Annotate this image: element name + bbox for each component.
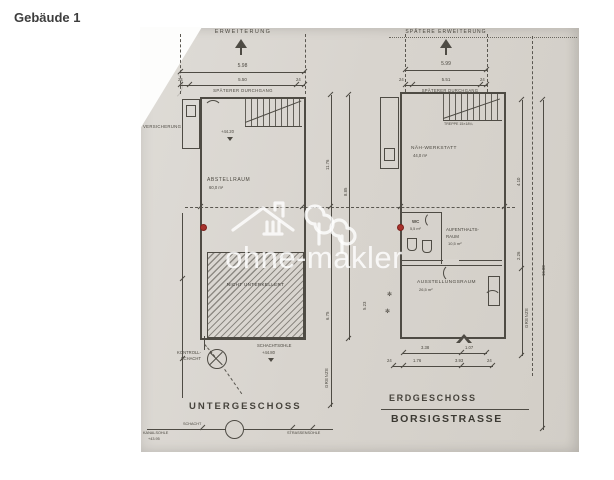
dim-height-inner: 8.85	[344, 188, 349, 196]
passage-label: SPÄTERER DURCHGANG	[191, 89, 295, 94]
dim-bottom-c: 1.76	[413, 359, 421, 363]
door-swing-arc	[425, 212, 441, 228]
dim-right-upper: 4.10	[517, 178, 522, 186]
room-workshop-label: NÄH-WERKSTATT	[411, 146, 457, 151]
room-wc-area: 5,5 m²	[410, 227, 421, 231]
floor-plan-scan: ERWEITERUNG 5.98 24 5.50 24 SPÄTERER DUR…	[141, 28, 579, 452]
no-basement-label: NICHT UNTERKELLERT	[208, 283, 303, 288]
dim-tick	[540, 426, 546, 432]
closet	[488, 276, 500, 306]
extension-label: SPÄTERE ERWEITERUNG	[393, 30, 499, 35]
dim-total-label: 5.98	[180, 64, 305, 69]
dim-right-mid: 2.26	[517, 252, 522, 260]
schacht-label: SCHACHT	[183, 422, 201, 426]
title-underline	[381, 409, 529, 410]
room-exhibition-label: AUSSTELLUNGSRAUM	[417, 280, 476, 285]
marker-red-dot	[200, 224, 207, 231]
room-storage-area: 60,0 m²	[209, 186, 223, 190]
level-triangle-icon	[227, 137, 233, 141]
dim-bottom-d: 3.93	[455, 359, 463, 363]
level-triangle-icon	[268, 358, 274, 362]
dimension-line	[393, 366, 493, 367]
room-exhibition-area: 26,5 m²	[419, 288, 433, 292]
strassensohle-label: STRASSENSOHLE	[287, 431, 320, 435]
dim-bottom-f: 24	[487, 359, 492, 363]
dim-tick	[328, 403, 334, 409]
dim-tick	[519, 353, 525, 359]
dimension-line	[405, 70, 487, 71]
vertical-dim-line	[522, 100, 523, 356]
room-lounge-line2: RAUM	[446, 234, 459, 239]
dim-tick	[484, 350, 490, 356]
room-workshop-area: 44,0 m²	[413, 154, 427, 158]
side-dim-line	[182, 213, 183, 398]
groundfloor-title: ERDGESCHOSS	[389, 394, 477, 403]
dim-bottom-e: 24	[387, 359, 392, 363]
symbol-asterisk: ✻	[387, 292, 392, 298]
room-lounge-line1: AUFENTHALTS-	[446, 227, 479, 232]
dim-total-label: 5.99	[405, 62, 487, 67]
level-mark: +44.20	[221, 130, 234, 134]
dimension-line	[180, 72, 305, 73]
room-lounge-label: AUFENTHALTS- RAUM	[446, 226, 479, 240]
kanalsohle-level: +43.95	[148, 437, 160, 441]
dim-wall-left: 24	[399, 78, 404, 82]
dimension-line	[403, 353, 487, 354]
control-shaft-line1: KONTROLL-	[177, 350, 201, 355]
symbol-asterisk: ✻	[385, 309, 390, 315]
street-name: BORSIGSTRASSE	[391, 414, 503, 425]
dim-bottom-b: 1.07	[465, 346, 473, 350]
dim-height-upper: 11.76	[326, 160, 331, 170]
exterior-structure-box	[384, 148, 395, 161]
dashed-connector	[224, 369, 242, 394]
extension-label: ERWEITERUNG	[171, 30, 315, 36]
dim-wall-right: 24	[296, 78, 301, 82]
door-swing-arc	[204, 100, 222, 118]
dim-bottom-a: 3.38	[421, 346, 429, 350]
stairs-label: TREPPE 15×18¼	[444, 123, 472, 127]
dim-inner-label: 5.50	[180, 78, 305, 83]
exterior-structure-box	[186, 105, 196, 117]
marker-red-dot	[397, 224, 404, 231]
grenze-label-left: GRENZE	[325, 368, 329, 388]
extension-boundary-right	[305, 34, 306, 94]
wc-wall	[441, 212, 442, 264]
insurance-label: VERSICHERUNG	[143, 125, 181, 130]
watermark-text: ohne-makler	[199, 240, 429, 276]
room-storage-label: ABSTELLRAUM	[207, 178, 250, 183]
dimension-line	[180, 85, 305, 86]
dim-inner-label: 5.51	[405, 78, 487, 83]
kanalsohle-label: KANALSOHLE	[143, 431, 168, 435]
dim-height-lower: 6.75	[326, 312, 331, 320]
dim-tick	[346, 336, 352, 342]
shaft-sole-level: +44.80	[262, 351, 275, 355]
shaft-sole-label: SCHACHTSOHLE	[257, 344, 291, 348]
room-wc-label: WC	[412, 220, 419, 225]
control-shaft-label: KONTROLL- SCHACHT	[145, 350, 201, 363]
top-dotted-line	[389, 37, 577, 38]
dim-wall-right: 24	[480, 78, 485, 82]
page-title: Gebäude 1	[14, 10, 80, 25]
dimension-line	[405, 85, 487, 86]
dim-tick	[490, 363, 496, 369]
dim-height-extra: 5.23	[363, 302, 368, 310]
basement-title: UNTERGESCHOSS	[189, 402, 302, 412]
control-shaft-circle	[207, 349, 227, 369]
grenze-label-right: GRENZE	[525, 308, 529, 328]
manhole-circle	[225, 420, 244, 439]
grenze-boundary-line	[532, 36, 533, 376]
control-shaft-line2: SCHACHT	[181, 356, 201, 361]
room-lounge-area: 10,5 m²	[448, 242, 462, 246]
dim-right-outer: 16.00	[542, 265, 547, 276]
